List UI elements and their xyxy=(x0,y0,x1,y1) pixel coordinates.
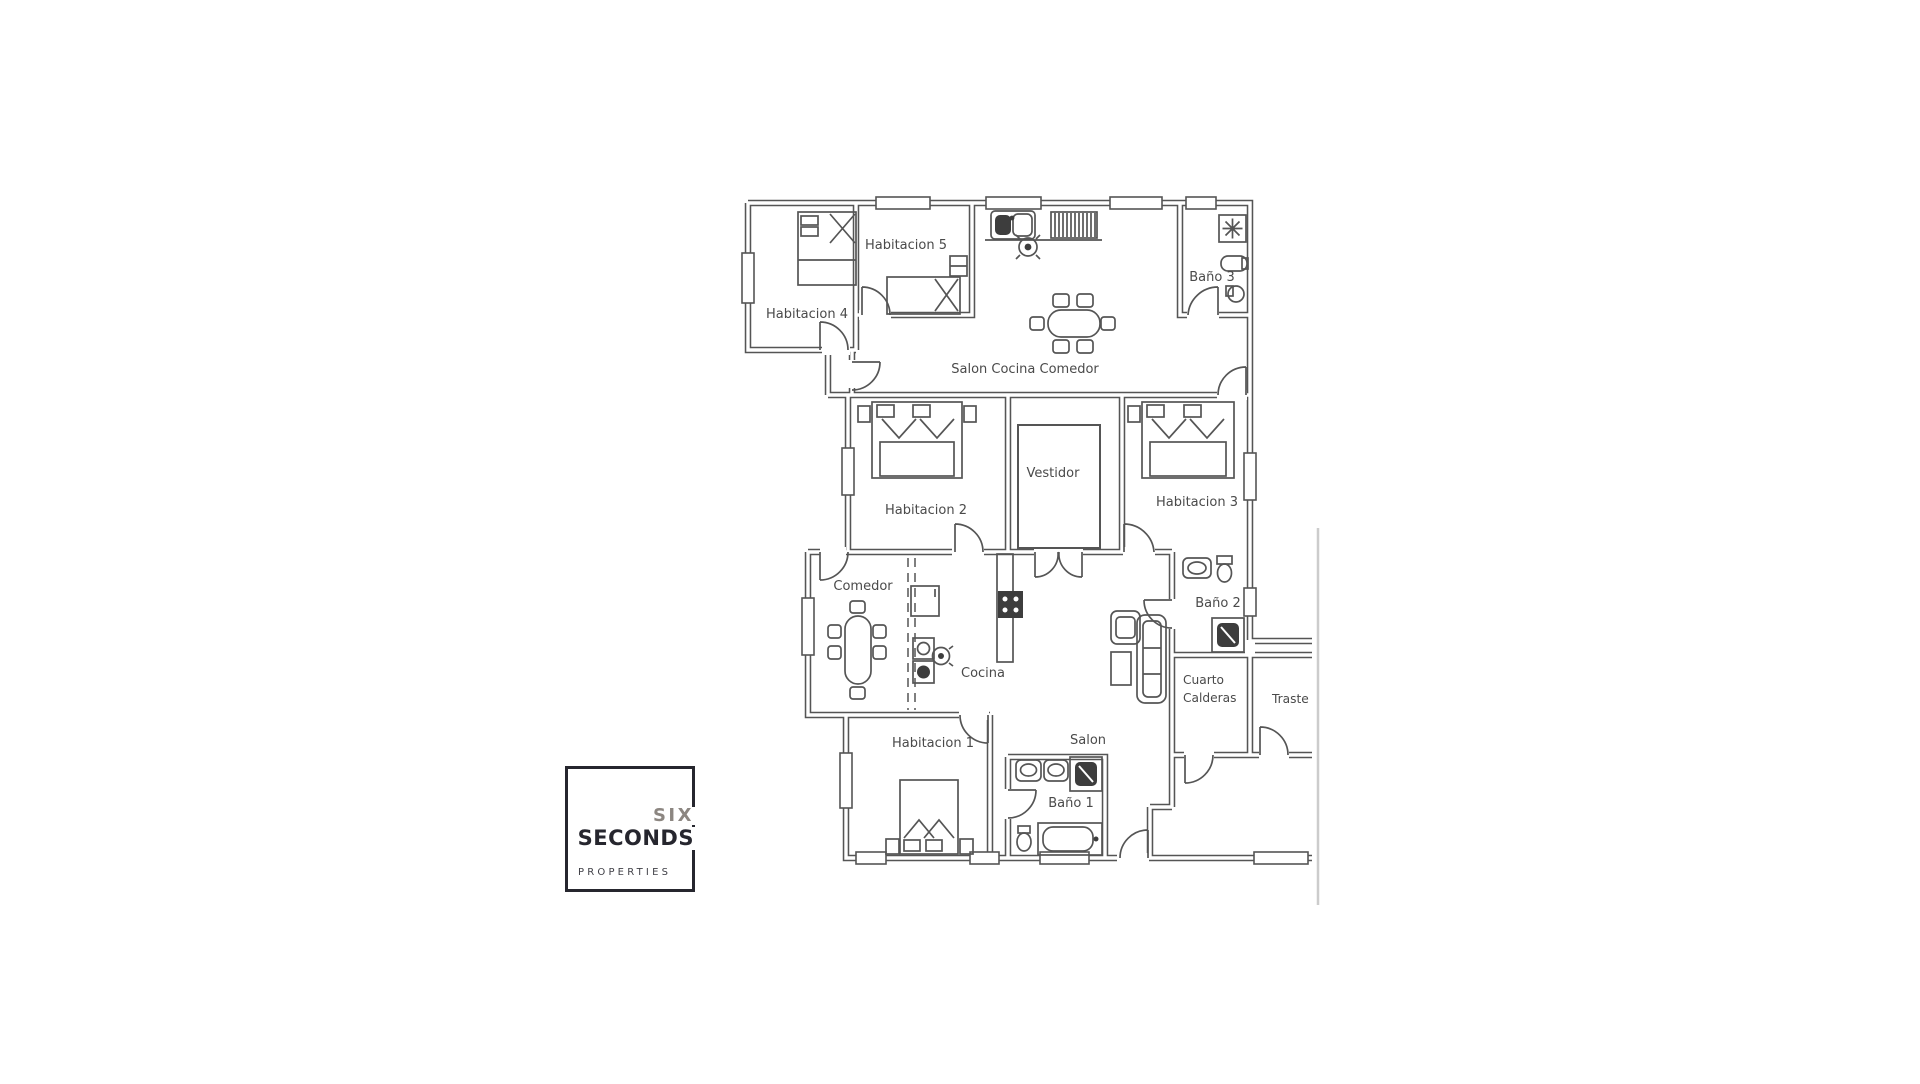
room-label-habitacion-1: Habitacion 1 xyxy=(892,736,974,751)
logo-word-six: SIX xyxy=(645,807,696,825)
cocina-sink-icon xyxy=(933,646,954,666)
agency-logo: SIX SECONDS PROPERTIES xyxy=(565,766,695,892)
room-label-cocina: Cocina xyxy=(961,666,1005,681)
kitchen-small-fixture-icon xyxy=(1016,235,1040,259)
room-label-trastero-cut: Traste xyxy=(1271,692,1309,706)
room-label-cuarto-calderas-line2: Calderas xyxy=(1183,691,1236,705)
bathroom1-toilet-icon xyxy=(1017,826,1031,851)
floorplan-scan-page: Habitacion 4 Habitacion 5 Baño 3 Salon C… xyxy=(0,0,1920,1080)
stove-icon xyxy=(997,554,1023,662)
open-partition-dashed xyxy=(908,558,915,710)
washer-dryer-icon xyxy=(913,638,934,683)
room-label-bano-1: Baño 1 xyxy=(1048,796,1093,811)
bathtub-icon xyxy=(1038,823,1102,855)
bed-icon-hab5 xyxy=(887,256,967,314)
bathroom3-sink-icon xyxy=(1221,256,1248,271)
logo-word-properties: PROPERTIES xyxy=(578,868,671,878)
bathroom2-sink-icon xyxy=(1183,558,1211,578)
room-label-habitacion-5: Habitacion 5 xyxy=(865,238,947,253)
bed-icon-hab4 xyxy=(798,212,856,285)
bathroom1-sinks-icon xyxy=(1016,760,1068,781)
bed-icon-hab1 xyxy=(886,780,973,854)
room-label-cuarto-calderas-line1: Cuarto xyxy=(1183,673,1224,687)
room-label-habitacion-2: Habitacion 2 xyxy=(885,503,967,518)
room-label-habitacion-3: Habitacion 3 xyxy=(1156,495,1238,510)
bathroom3-toilet-icon xyxy=(1226,286,1244,302)
bed-icon-hab2 xyxy=(858,402,976,478)
room-label-bano-2: Baño 2 xyxy=(1195,596,1240,611)
room-label-comedor: Comedor xyxy=(833,579,893,594)
room-label-salon: Salon xyxy=(1070,733,1106,748)
bathroom2-shower-icon xyxy=(1212,618,1244,652)
radiator-icon xyxy=(1051,212,1097,238)
floorplan-drawing: Habitacion 4 Habitacion 5 Baño 3 Salon C… xyxy=(0,0,1920,1080)
comedor-table-icon xyxy=(828,601,886,699)
room-label-bano-3: Baño 3 xyxy=(1189,270,1234,285)
dining-table-icon xyxy=(1030,294,1115,353)
extractor-fan-icon xyxy=(1219,215,1246,242)
room-label-vestidor: Vestidor xyxy=(1027,466,1081,481)
bathroom2-toilet-icon xyxy=(1217,556,1232,582)
logo-word-seconds: SECONDS xyxy=(570,827,696,850)
bed-icon-hab3 xyxy=(1128,402,1234,478)
vestidor-closet-outline xyxy=(1018,425,1100,548)
room-label-habitacion-4: Habitacion 4 xyxy=(766,307,848,322)
bathroom1-shower-icon xyxy=(1070,757,1102,791)
room-label-salon-cocina-comedor: Salon Cocina Comedor xyxy=(951,362,1099,377)
kitchen-sink-icon xyxy=(991,211,1035,239)
